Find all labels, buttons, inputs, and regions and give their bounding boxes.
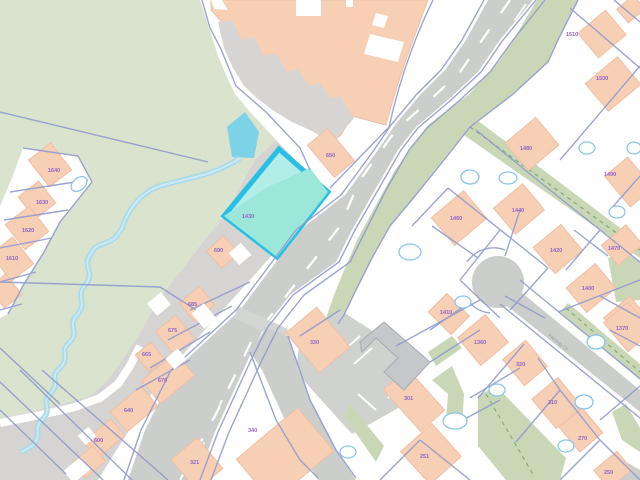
svg-text:600: 600 bbox=[94, 438, 103, 444]
svg-text:685: 685 bbox=[188, 302, 197, 308]
svg-text:1410: 1410 bbox=[440, 310, 452, 316]
svg-text:301: 301 bbox=[404, 396, 413, 402]
svg-text:310: 310 bbox=[548, 400, 557, 406]
svg-text:1640: 1640 bbox=[48, 168, 60, 174]
svg-text:270: 270 bbox=[578, 436, 587, 442]
svg-text:250: 250 bbox=[604, 470, 613, 476]
svg-text:1440: 1440 bbox=[512, 208, 524, 214]
svg-text:690: 690 bbox=[214, 248, 223, 254]
svg-text:320: 320 bbox=[516, 362, 525, 368]
svg-text:1460: 1460 bbox=[450, 216, 462, 222]
svg-text:640: 640 bbox=[124, 408, 133, 414]
svg-text:330: 330 bbox=[310, 340, 319, 346]
svg-text:1400: 1400 bbox=[582, 286, 594, 292]
svg-text:1490: 1490 bbox=[604, 172, 616, 178]
svg-text:1420: 1420 bbox=[550, 248, 562, 254]
svg-text:1610: 1610 bbox=[6, 256, 18, 262]
svg-text:1360: 1360 bbox=[474, 340, 486, 346]
svg-text:675: 675 bbox=[168, 328, 177, 334]
svg-text:1480: 1480 bbox=[520, 146, 532, 152]
svg-text:1500: 1500 bbox=[596, 76, 608, 82]
svg-text:650: 650 bbox=[326, 153, 335, 159]
svg-text:1470: 1470 bbox=[608, 246, 620, 252]
svg-text:670: 670 bbox=[158, 378, 167, 384]
svg-text:251: 251 bbox=[420, 454, 429, 460]
svg-text:321: 321 bbox=[190, 460, 199, 466]
svg-text:340: 340 bbox=[248, 428, 257, 434]
svg-text:665: 665 bbox=[142, 352, 151, 358]
svg-text:1370: 1370 bbox=[616, 326, 628, 332]
svg-text:1620: 1620 bbox=[22, 228, 34, 234]
svg-text:1510: 1510 bbox=[566, 32, 578, 38]
svg-text:1630: 1630 bbox=[36, 200, 48, 206]
svg-text:1430: 1430 bbox=[242, 214, 254, 220]
